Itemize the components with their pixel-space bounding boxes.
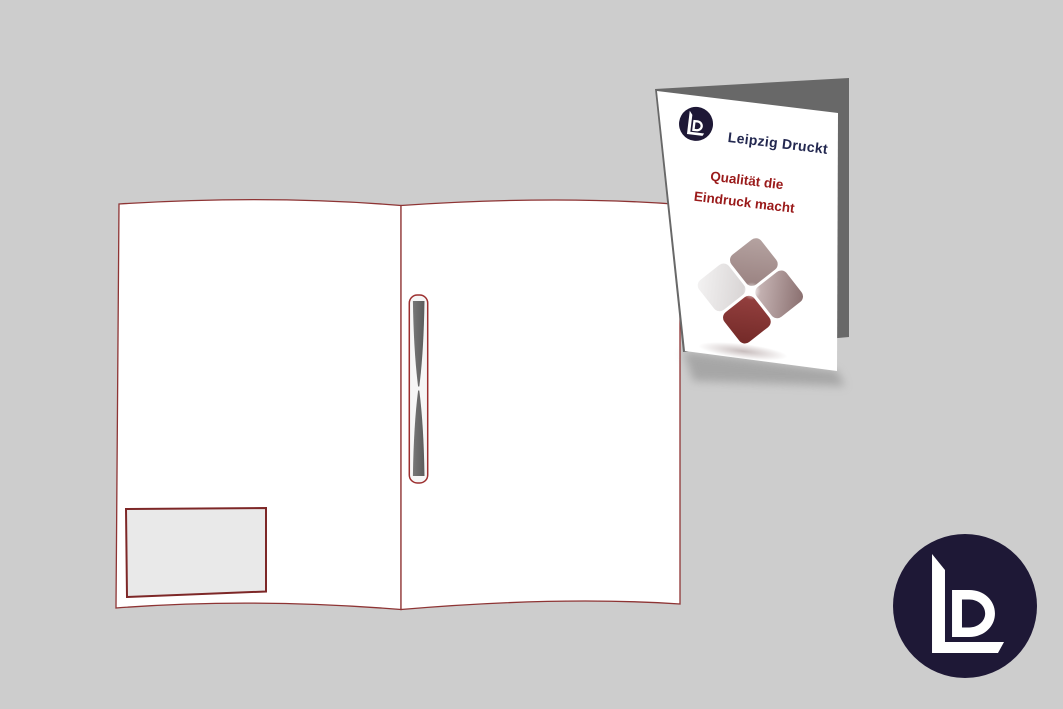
corner-ld-logo [893,534,1037,678]
mockup-image: Leipzig Druckt Qualität die Eindruck mac… [0,0,1063,709]
business-card-slot [126,508,266,597]
open-folder-right-page [401,200,680,610]
open-folder [116,200,680,610]
corner-logo-circle [893,534,1037,678]
folder-mockup-scene: Leipzig Druckt Qualität die Eindruck mac… [0,0,1063,709]
